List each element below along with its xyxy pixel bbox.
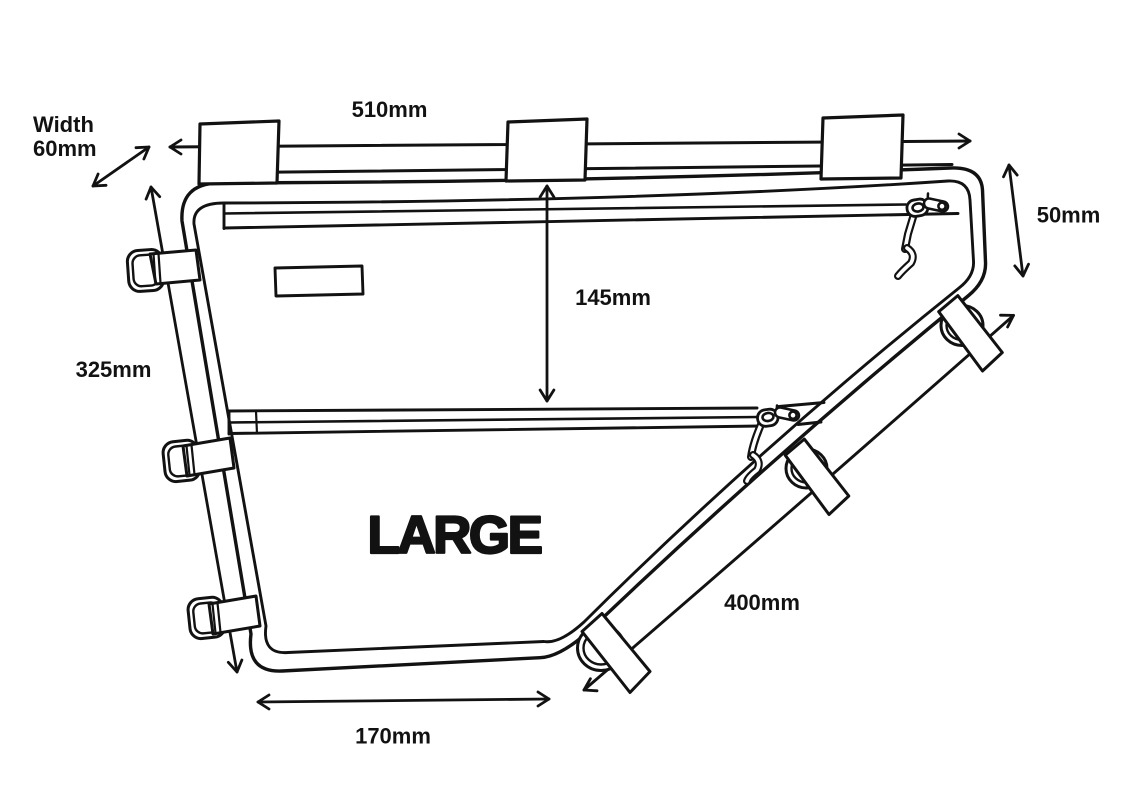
svg-text:50mm: 50mm xyxy=(1037,203,1101,228)
svg-text:145mm: 145mm xyxy=(575,285,651,310)
svg-text:60mm: 60mm xyxy=(33,136,97,161)
svg-text:400mm: 400mm xyxy=(724,590,800,615)
svg-text:325mm: 325mm xyxy=(76,357,152,382)
svg-text:LARGE: LARGE xyxy=(368,506,542,565)
svg-text:Width: Width xyxy=(33,112,94,137)
svg-text:510mm: 510mm xyxy=(352,97,428,122)
svg-text:170mm: 170mm xyxy=(355,724,431,749)
